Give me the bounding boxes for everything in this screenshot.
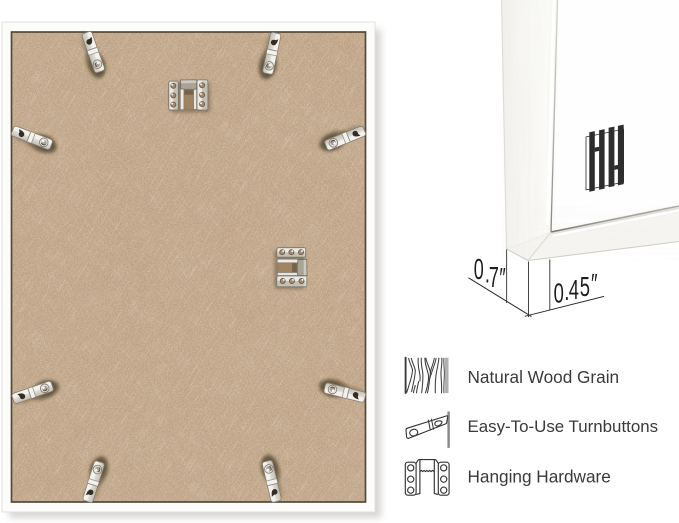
svg-text:″: ″ bbox=[499, 263, 505, 295]
svg-text:7: 7 bbox=[489, 262, 499, 294]
svg-text:5: 5 bbox=[580, 272, 590, 303]
svg-text:Hanging Hardware: Hanging Hardware bbox=[468, 467, 611, 487]
svg-text:Natural Wood Grain: Natural Wood Grain bbox=[468, 367, 620, 387]
svg-text:0: 0 bbox=[474, 254, 484, 286]
svg-text:Easy-To-Use Turnbuttons: Easy-To-Use Turnbuttons bbox=[468, 417, 659, 436]
svg-text:″: ″ bbox=[591, 269, 598, 300]
svg-text:0: 0 bbox=[554, 278, 564, 309]
svg-text:4: 4 bbox=[569, 274, 579, 305]
